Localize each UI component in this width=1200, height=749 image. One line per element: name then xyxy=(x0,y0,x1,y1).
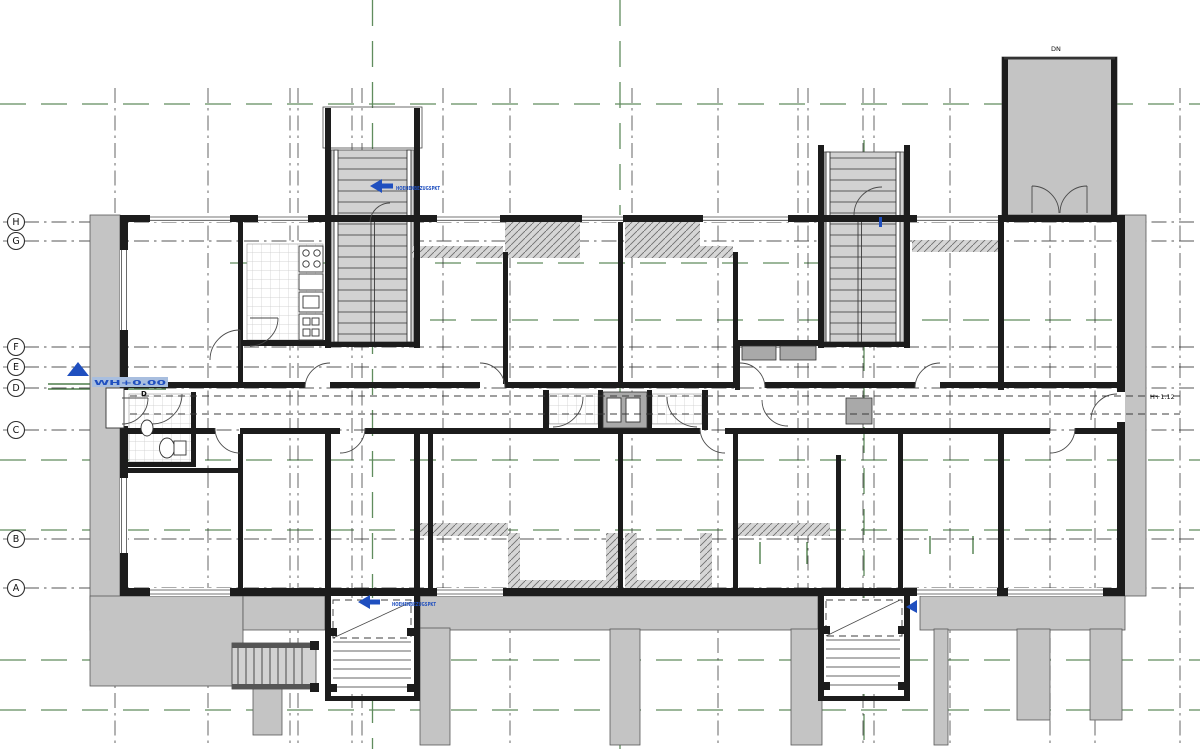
closet xyxy=(846,398,872,424)
blue-tick xyxy=(879,217,882,227)
svg-text:D: D xyxy=(12,383,19,394)
grid-bubble-D: D xyxy=(3,380,25,397)
pier xyxy=(610,629,640,745)
svg-text:G: G xyxy=(12,236,19,247)
duct-box xyxy=(742,346,776,360)
pier xyxy=(420,628,450,745)
garage: DN xyxy=(1002,45,1117,215)
grid-bubble-G: G xyxy=(3,233,25,250)
stair-core-2-lower xyxy=(822,598,906,694)
grid-bubble-F: F xyxy=(3,339,25,356)
grid-bubble-H: H xyxy=(3,214,25,231)
stair-note-upper-text: HOEHENBEZUGSPKT xyxy=(396,186,440,192)
svg-text:E: E xyxy=(13,362,19,373)
entry-porch-frame xyxy=(106,388,124,428)
stair-core-2-upper xyxy=(824,152,904,342)
pier xyxy=(1017,629,1050,720)
exterior-stair xyxy=(232,641,319,692)
svg-text:H: H xyxy=(12,217,19,228)
svg-text:F: F xyxy=(13,342,18,353)
duct-box xyxy=(780,346,816,360)
kitchen-fixtures xyxy=(299,246,323,340)
stair-core-1-lower xyxy=(329,598,415,694)
svg-text:A: A xyxy=(13,583,20,594)
level-triangle-icon xyxy=(67,362,89,376)
garage-dn-label: DN xyxy=(1051,45,1061,53)
svg-text:C: C xyxy=(13,425,20,436)
entry-door-label: D xyxy=(141,390,147,398)
level-marker-text: WH+0.00 xyxy=(94,379,166,387)
stair-note-lower-text: HOEHENBEZUGSPKT xyxy=(392,602,436,608)
shaft-duct xyxy=(603,392,647,428)
pier xyxy=(791,629,822,745)
grid-bubbles: H G F E D C B A xyxy=(3,214,25,597)
grid-bubble-B: B xyxy=(3,531,25,548)
grid-bubble-E: E xyxy=(3,359,25,376)
pier xyxy=(934,629,948,745)
floor-plan-canvas: DN xyxy=(0,0,1200,749)
pier xyxy=(253,686,282,735)
grid-bubble-C: C xyxy=(3,422,25,439)
pier xyxy=(1090,629,1122,720)
svg-text:B: B xyxy=(13,534,20,545)
floor-plan-drawing: DN xyxy=(0,0,1200,749)
corridor-height-label: H+1.12 xyxy=(1150,393,1175,401)
grid-bubble-A: A xyxy=(3,580,25,597)
